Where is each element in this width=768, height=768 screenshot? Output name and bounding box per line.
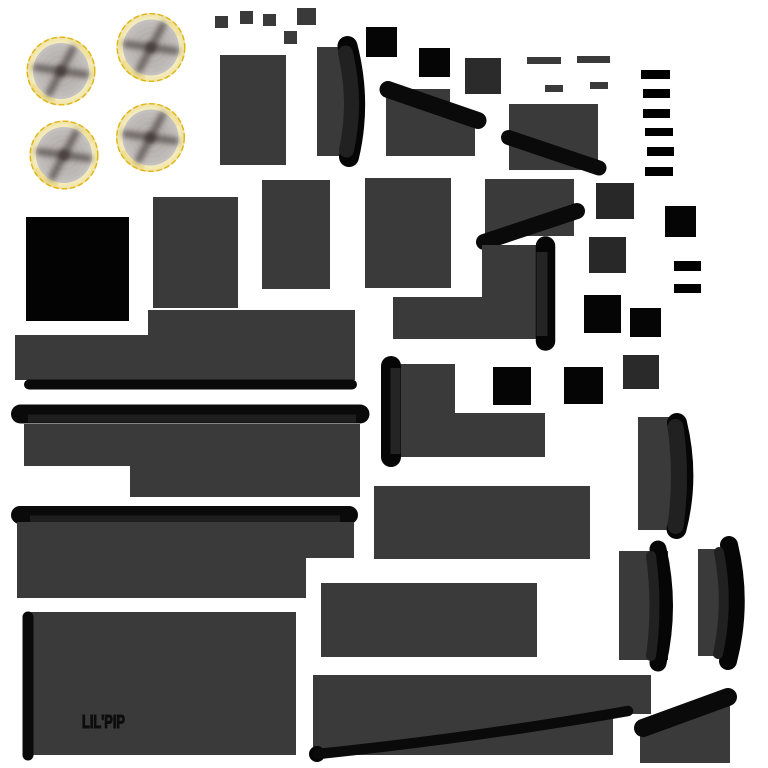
svg-text:LIL'PIP: LIL'PIP — [82, 712, 125, 732]
